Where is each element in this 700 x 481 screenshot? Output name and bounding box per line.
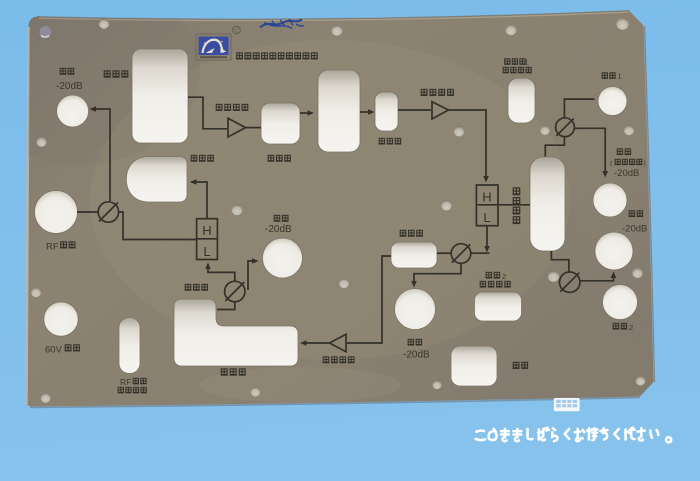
svg-text:1: 1 [525,58,529,67]
svg-text:-20dB: -20dB [622,224,647,235]
svg-text:1: 1 [618,72,622,81]
svg-text:-20dB: -20dB [56,81,83,92]
svg-text:2: 2 [629,323,633,332]
svg-text:2: 2 [502,272,506,281]
svg-text:L: L [203,244,210,259]
svg-text:-20dB: -20dB [265,224,292,235]
svg-text:H: H [202,223,211,238]
svg-text:): ) [644,160,646,167]
svg-text:L: L [483,210,490,225]
svg-text:C: C [235,29,239,35]
svg-text:60V: 60V [45,345,63,356]
svg-text:RF: RF [120,377,131,387]
svg-text:-20dB: -20dB [403,350,430,361]
svg-text:RF: RF [46,242,59,253]
svg-text:H: H [482,190,491,205]
svg-text:-20dB: -20dB [614,168,639,179]
